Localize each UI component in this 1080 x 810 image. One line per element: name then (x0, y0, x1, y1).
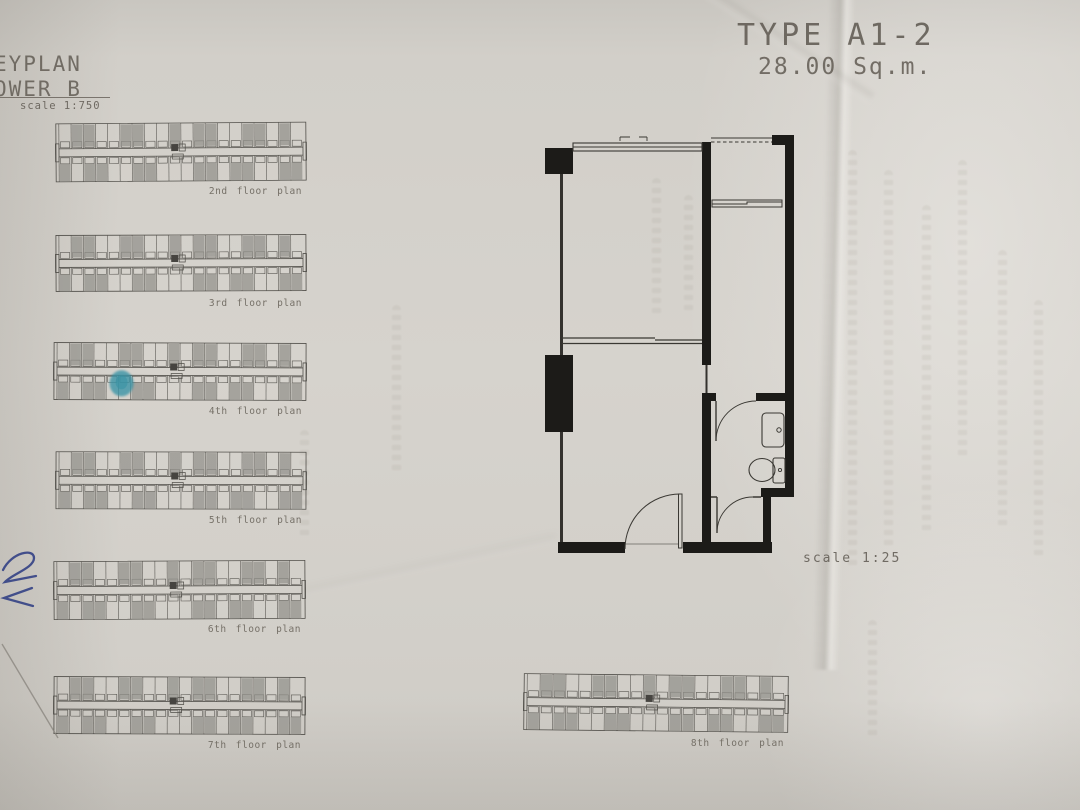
keyplan-strip-5f (55, 449, 307, 512)
keyplan-strip-7f (53, 674, 306, 738)
sliding-partition (562, 338, 702, 344)
structural-columns (545, 148, 573, 432)
unit-scale-label: scale 1:25 (803, 551, 901, 566)
floor-strip-label: 5th floor plan (55, 515, 302, 526)
bathroom-fixtures (711, 401, 785, 533)
toilet-bowl (749, 459, 775, 482)
keyplan-strip-3f (55, 232, 307, 295)
scanned-floorplan-sheet: EYPLAN OWER B scale 1:750 2nd floor plan… (0, 0, 1080, 810)
floor-strip-label: 7th floor plan (53, 740, 301, 751)
paper-sheen-corner (760, 480, 1080, 810)
keyplan-title-line1: EYPLAN (0, 52, 82, 76)
kitchen-counter (712, 200, 782, 207)
keyplan-strip-4f (53, 340, 307, 404)
floor-strip-label: 2nd floor plan (55, 186, 302, 197)
bedroom-window (573, 137, 702, 151)
pen-scribble-mark (0, 548, 60, 628)
unit-floorplan-drawing (535, 125, 805, 565)
floor-strip-label: 8th floor plan (523, 738, 784, 749)
keyplan-underline (0, 97, 110, 98)
balcony-louver (711, 138, 772, 142)
keyplan-strip-6f (53, 557, 306, 622)
entry-door (625, 494, 682, 549)
thin-walls (560, 174, 708, 542)
keyplan-scale-label: scale 1:750 (20, 100, 101, 112)
unit-area-label: 28.00 Sq.m. (758, 54, 932, 80)
floor-strip-label: 6th floor plan (53, 624, 301, 635)
keyplan-strip-2f (55, 119, 307, 185)
keyplan-strip-8f (523, 671, 790, 736)
floor-strip-label: 4th floor plan (53, 406, 302, 417)
paper-crease-faint (302, 533, 558, 597)
floor-strip-label: 3rd floor plan (55, 298, 302, 309)
unit-type-title: TYPE A1-2 (737, 18, 936, 53)
